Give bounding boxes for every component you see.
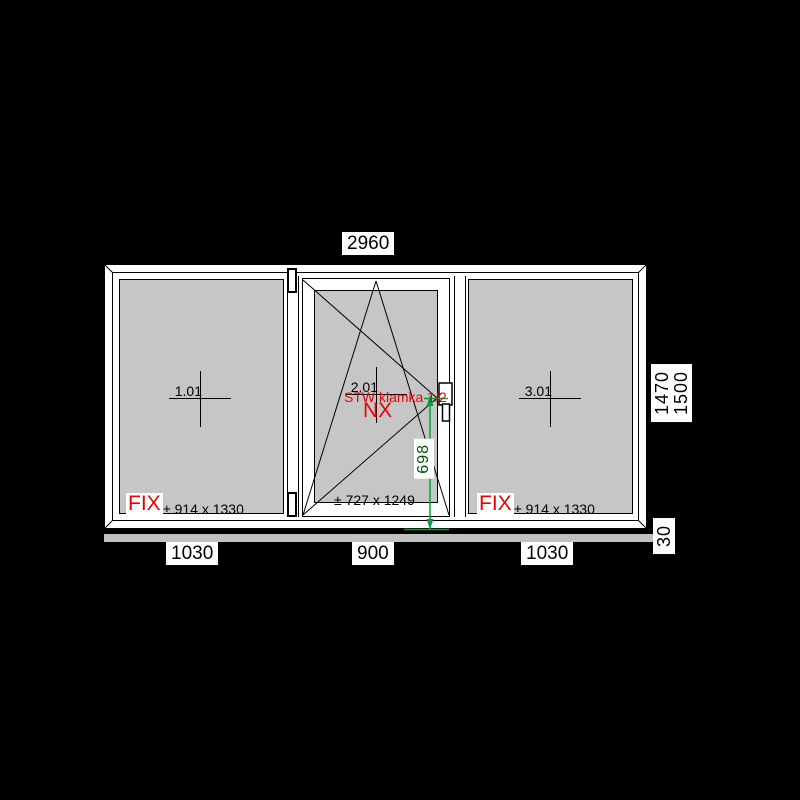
panel-3-type-label: FIX	[477, 493, 514, 514]
panel-2-hardware-label: STW klamka 1/2	[344, 390, 447, 404]
drawing-canvas: 2960 1030 900 1030 1470 1500 30 698 1.01…	[0, 0, 800, 800]
panel-1-type-label: FIX	[126, 493, 163, 514]
dimension-width-panel-2: 900	[352, 542, 394, 565]
panel-2-type-label: NX	[363, 400, 392, 421]
panel-1-glass-size: ± 914 x 1330	[163, 502, 244, 516]
dimension-width-panel-1: 1030	[166, 542, 218, 565]
dimension-handle-height: 698	[414, 439, 434, 479]
panel-3-glass-size: ± 914 x 1330	[514, 502, 595, 516]
panel-2-glass-size: ± 727 x 1249	[334, 493, 415, 507]
dimension-total-width: 2960	[342, 232, 394, 255]
panel-3-number: 3.01	[518, 384, 552, 398]
dimension-total-height: 1500	[670, 364, 692, 422]
dimension-sill-height: 30	[653, 518, 675, 554]
dimension-width-panel-3: 1030	[521, 542, 573, 565]
panel-1-number: 1.01	[168, 384, 202, 398]
